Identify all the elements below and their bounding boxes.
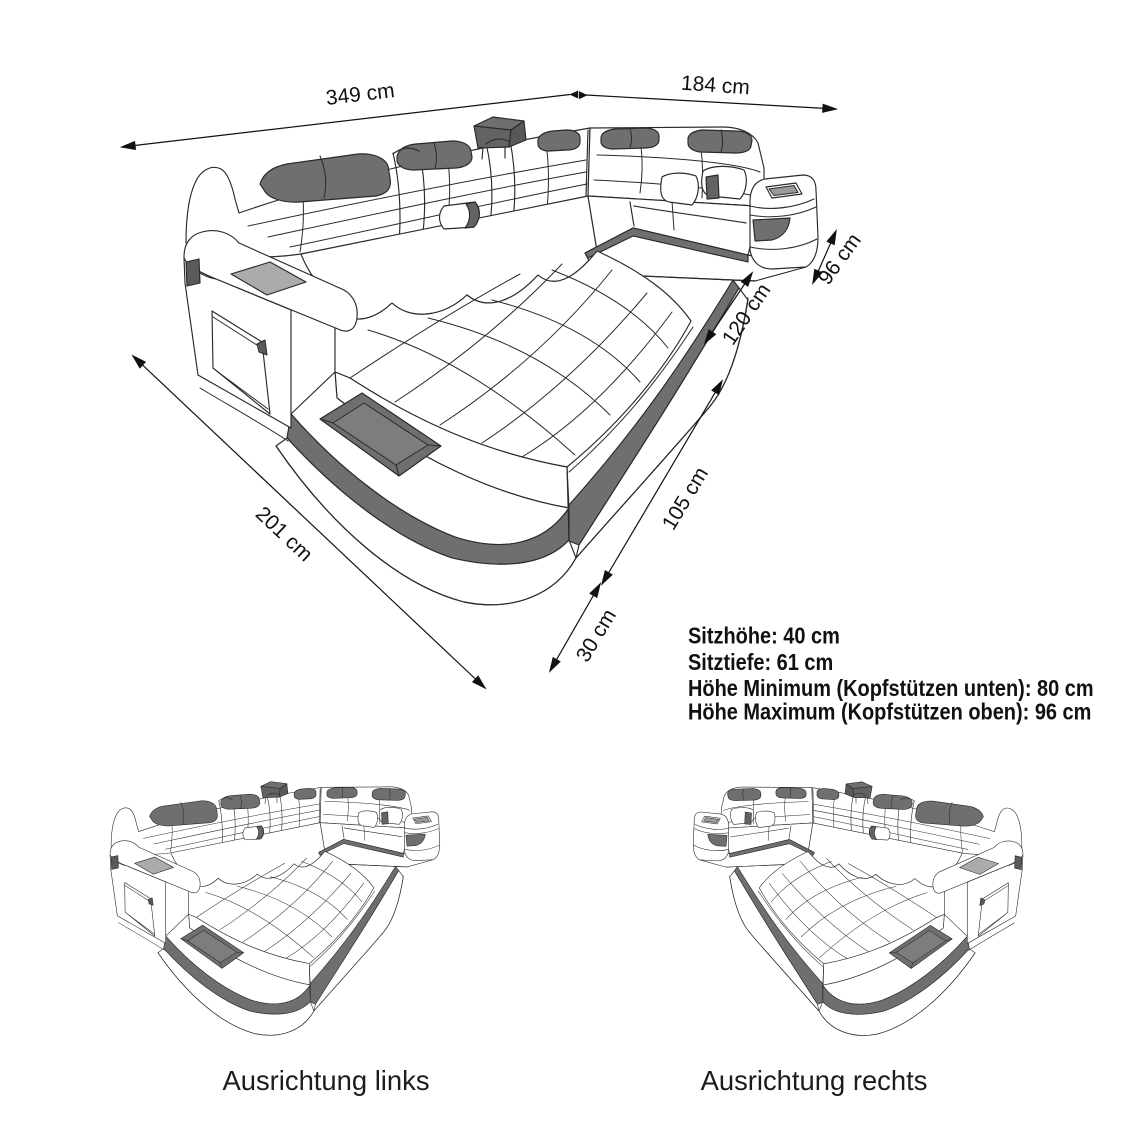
svg-text:Sitztiefe: 61 cm: Sitztiefe: 61 cm xyxy=(688,650,833,676)
svg-text:184 cm: 184 cm xyxy=(680,72,750,100)
svg-text:30 cm: 30 cm xyxy=(572,605,621,666)
svg-text:349 cm: 349 cm xyxy=(325,79,396,110)
svg-text:Höhe Minimum (Kopfstützen unte: Höhe Minimum (Kopfstützen unten): 80 cm xyxy=(688,676,1094,702)
svg-text:Sitzhöhe: 40 cm: Sitzhöhe: 40 cm xyxy=(688,623,840,649)
svg-text:105 cm: 105 cm xyxy=(658,463,713,534)
svg-text:201 cm: 201 cm xyxy=(251,502,317,566)
svg-text:96 cm: 96 cm xyxy=(814,229,866,289)
svg-text:Höhe Maximum (Kopfstützen oben: Höhe Maximum (Kopfstützen oben): 96 cm xyxy=(688,699,1091,725)
svg-text:Ausrichtung links: Ausrichtung links xyxy=(222,1065,429,1096)
svg-text:Ausrichtung rechts: Ausrichtung rechts xyxy=(701,1065,928,1096)
